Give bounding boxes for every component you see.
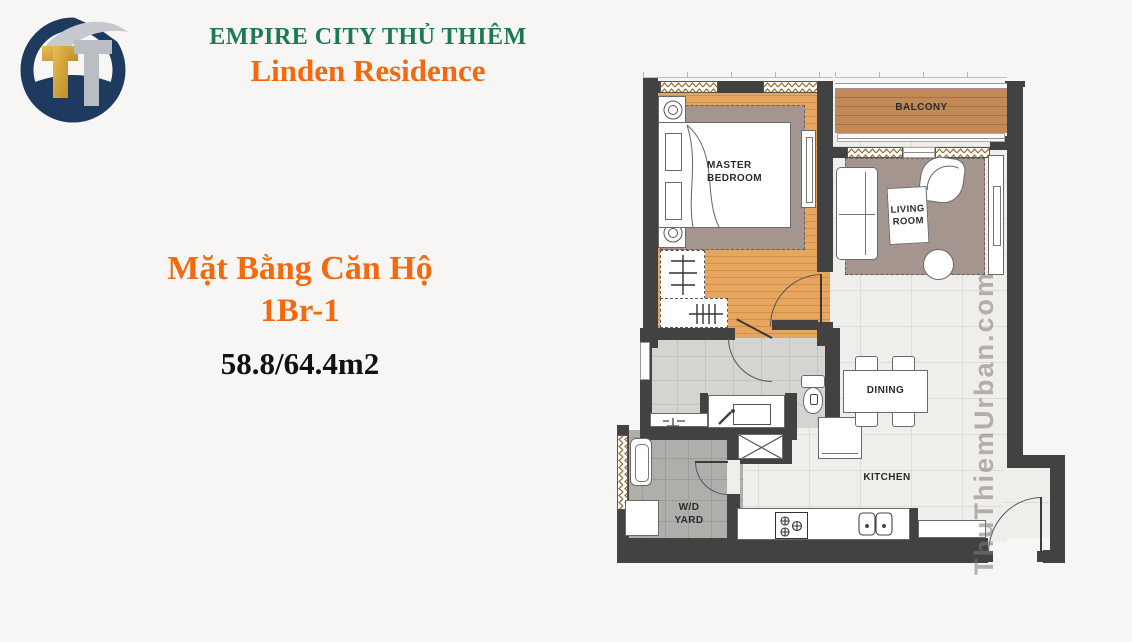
window-bathroom-left <box>640 342 650 380</box>
living-side-cabinet <box>988 155 1004 275</box>
brand-block: EMPIRE CITY THỦ THIÊM Linden Residence <box>118 24 618 89</box>
brand-line1: EMPIRE CITY THỦ THIÊM <box>118 24 618 51</box>
counter-end-wall <box>910 508 918 540</box>
wall-right-main <box>1007 83 1023 455</box>
plan-title-block: Mặt Bằng Căn Hộ 1Br-1 58.8/64.4m2 <box>60 250 540 382</box>
wall-right-cap <box>1005 81 1025 87</box>
dining-table: DINING <box>843 370 928 413</box>
plan-area-text: 58.8/64.4m2 <box>60 346 540 382</box>
wall-bathroom-bottom <box>640 427 708 440</box>
dining-chair <box>892 356 915 371</box>
stove-icon <box>775 512 808 539</box>
side-table <box>923 249 954 280</box>
dining-label: DINING <box>867 385 904 398</box>
pillow <box>665 133 682 171</box>
dining-chair <box>855 356 878 371</box>
bathroom-vanity <box>708 395 785 428</box>
balcony-label: BALCONY <box>835 102 1008 115</box>
wall-bedroom-left <box>643 78 658 348</box>
page: { "header": { "logo_monogram": "TT", "br… <box>0 0 1132 642</box>
balcony-sliding-door <box>837 133 1005 142</box>
wd-yard-label: W/D YARD <box>667 502 711 527</box>
dining-chair <box>892 412 915 427</box>
dimension-line <box>643 70 833 78</box>
balcony-railing <box>835 83 1007 89</box>
entry-door-leaf <box>1040 497 1042 553</box>
sofa <box>836 167 878 260</box>
yard-door-leaf <box>695 461 728 463</box>
wardrobe <box>801 130 816 208</box>
dimension-line <box>835 70 1007 78</box>
floorplan: DINING MASTER BEDROOM BALCONY LIVING ROO… <box>613 70 1078 575</box>
closet-lower <box>660 298 728 328</box>
toilet-icon <box>800 375 826 419</box>
service-shaft <box>738 434 783 459</box>
window-hatch-bedroom-1 <box>660 81 718 93</box>
dining-chair <box>855 412 878 427</box>
wall-bottom <box>617 538 988 563</box>
closet-upper <box>660 250 705 299</box>
wall-right-lower <box>1050 466 1065 550</box>
yard-door-opening <box>727 460 740 494</box>
kitchen-label: KITCHEN <box>843 472 931 485</box>
shower-sink-counter <box>650 413 708 427</box>
wall-bedroom-living-divider <box>817 81 833 272</box>
brand-line2: Linden Residence <box>118 53 618 89</box>
wall-bathroom-right <box>825 328 840 425</box>
watermark: ThuThiemUrban.com <box>969 275 1000 575</box>
master-bedroom-label: MASTER BEDROOM <box>707 160 785 185</box>
window-hatch-yard <box>617 435 628 510</box>
pillow <box>665 182 682 220</box>
wall-bedroom-bottom <box>643 328 735 340</box>
bedroom-door-leaf <box>820 274 822 326</box>
living-room-label: LIVING ROOM <box>887 186 930 245</box>
washer <box>625 500 659 536</box>
window-hatch-living-1 <box>847 147 903 158</box>
nightstand <box>658 96 686 124</box>
water-heater <box>630 438 652 486</box>
kitchen-sink-icon <box>858 512 893 536</box>
plan-title-line2: 1Br-1 <box>60 293 540 330</box>
plan-title-line1: Mặt Bằng Căn Hộ <box>60 250 540 288</box>
wall-entry-side <box>1043 550 1065 563</box>
wall-living-top-block <box>833 147 847 158</box>
window-hatch-bedroom-2 <box>763 81 821 93</box>
